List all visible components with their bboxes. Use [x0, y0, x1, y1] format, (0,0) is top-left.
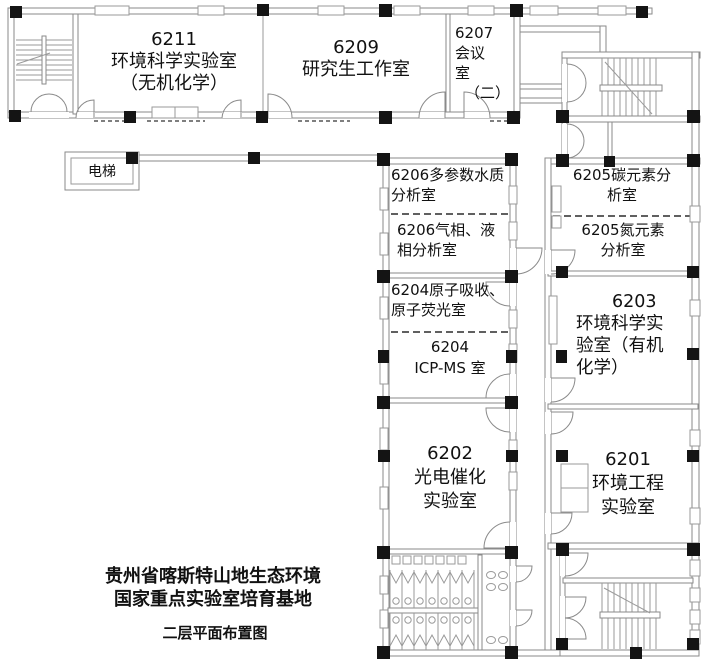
room-6203-label: 6203 环境科学实 验室（有机 化学）: [576, 291, 694, 379]
room-6209-label: 6209 研究生工作室: [282, 37, 430, 81]
room-6206-gas-label: 6206气相、液 相分析室: [397, 220, 513, 260]
elevator-label: 电梯: [65, 152, 139, 190]
room-6205-nitrogen-label: 6205氮元素 分析室: [560, 220, 686, 260]
room-6205-carbon-label: 6205碳元素分 析室: [552, 165, 692, 205]
lab-bench-6211: [152, 107, 198, 118]
restroom-fixtures: [388, 555, 508, 650]
room-6201-label: 6201 环境工程 实验室: [563, 448, 693, 520]
plan-title: 贵州省喀斯特山地生态环境 国家重点实验室培育基地: [57, 565, 369, 611]
room-6206-water-label: 6206多参数水质 分析室: [391, 165, 513, 205]
room-6204-atomic-label: 6204原子吸收、 原子荧光室: [391, 280, 513, 320]
room-6204-icpms-label: 6204 ICP-MS 室: [389, 337, 511, 379]
plan-caption: 二层平面布置图: [130, 622, 300, 643]
room-6202-label: 6202 光电催化 实验室: [389, 442, 511, 514]
floor-plan-figure: 6211 环境科学实验室 （无机化学） 6209 研究生工作室 6207 会议 …: [0, 0, 710, 661]
room-6207-label: 6207 会议 室 （二）: [455, 23, 513, 103]
room-6211-label: 6211 环境科学实验室 （无机化学）: [78, 29, 270, 95]
stairs-top-left: [16, 36, 72, 84]
stairs-bottom-right: [510, 549, 700, 656]
